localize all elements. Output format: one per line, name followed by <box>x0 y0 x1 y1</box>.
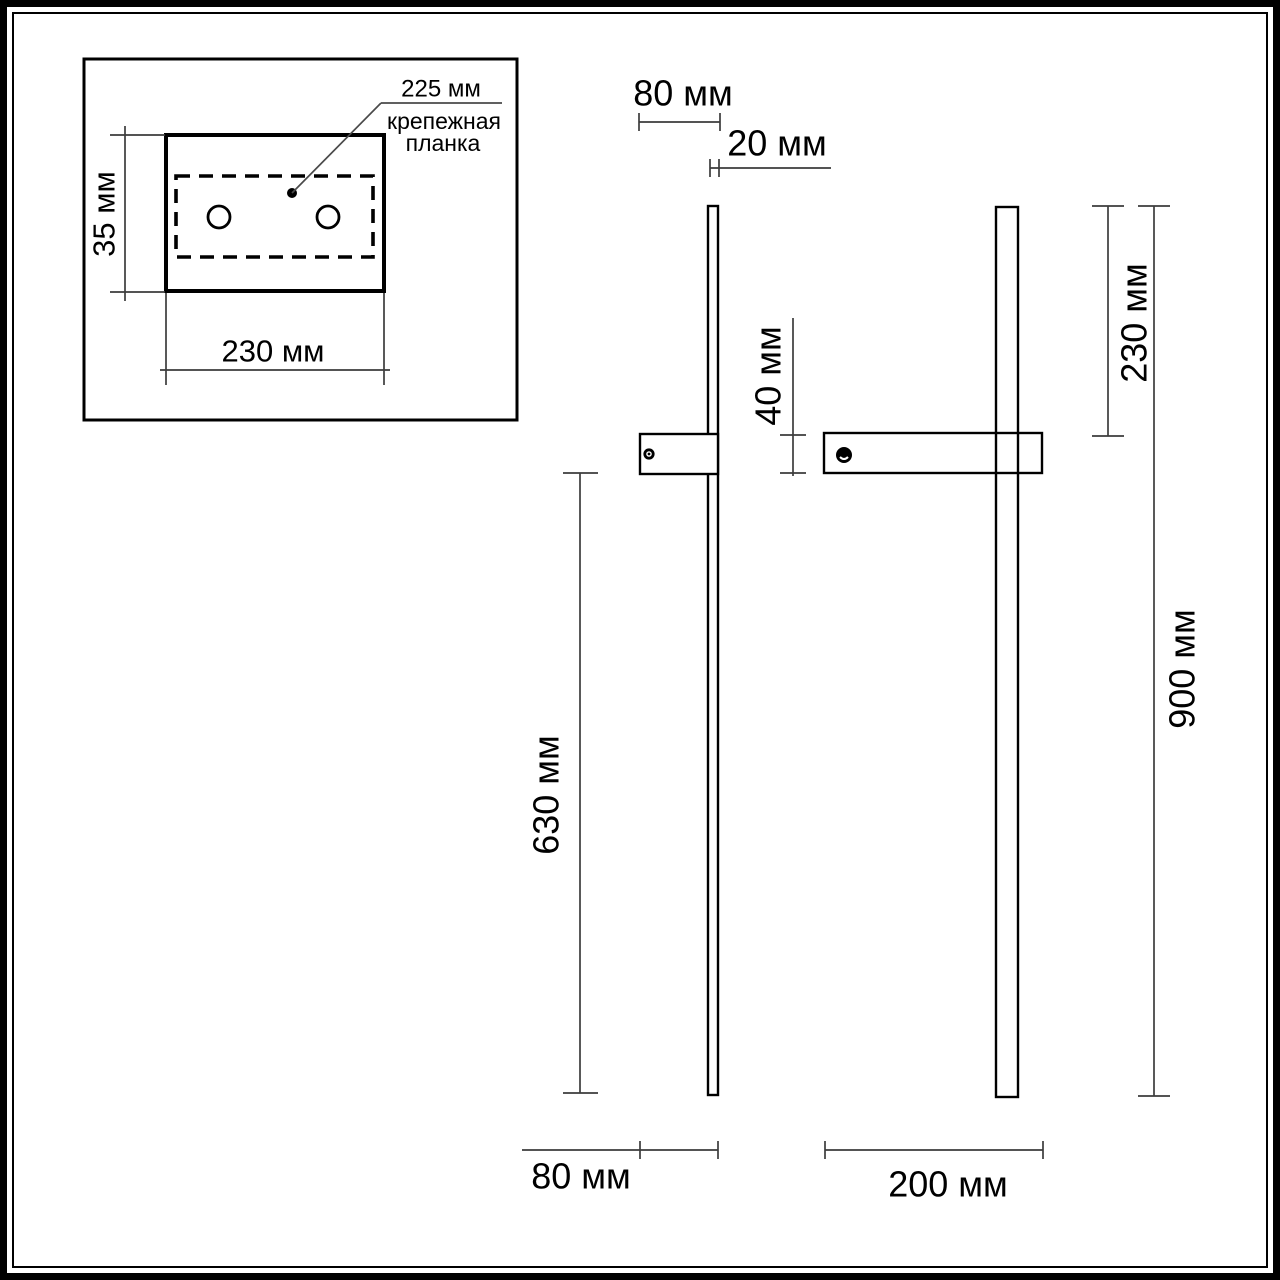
top-depth-label: 80 мм <box>633 73 733 114</box>
light-bar-side <box>708 206 718 1095</box>
plate-width-label: 200 мм <box>888 1164 1008 1205</box>
bracket-screw-hole-center <box>648 453 651 456</box>
mounting-hole-right <box>317 206 339 228</box>
drawing-page: 225 мм крепежная планка 35 мм 230 мм <box>0 0 1280 1280</box>
total-height-label: 900 мм <box>1162 609 1203 729</box>
dimension-top-depth: 80 мм <box>633 73 733 132</box>
bar-thickness-label: 20 мм <box>727 123 827 164</box>
inset-caption-line2: планка <box>406 130 481 156</box>
technical-drawing-canvas: 225 мм крепежная планка 35 мм 230 мм <box>0 0 1280 1280</box>
inset-hole-spacing-label: 225 мм <box>401 76 481 103</box>
inset-plate-height-label: 35 мм <box>87 171 122 257</box>
length-below-plate-label: 630 мм <box>526 735 567 855</box>
inset-plate-width-label: 230 мм <box>222 334 325 369</box>
plate-screw-head <box>836 447 852 463</box>
mounting-hole-left <box>208 206 230 228</box>
bracket-height-label: 40 мм <box>748 326 789 426</box>
top-to-plate-label: 230 мм <box>1114 263 1155 383</box>
backplate-outline <box>166 135 384 291</box>
dimension-bar-thickness: 20 мм <box>710 123 831 178</box>
inset-mounting-plate-detail: 225 мм крепежная планка 35 мм 230 мм <box>84 59 517 420</box>
bottom-depth-label: 80 мм <box>531 1156 631 1197</box>
